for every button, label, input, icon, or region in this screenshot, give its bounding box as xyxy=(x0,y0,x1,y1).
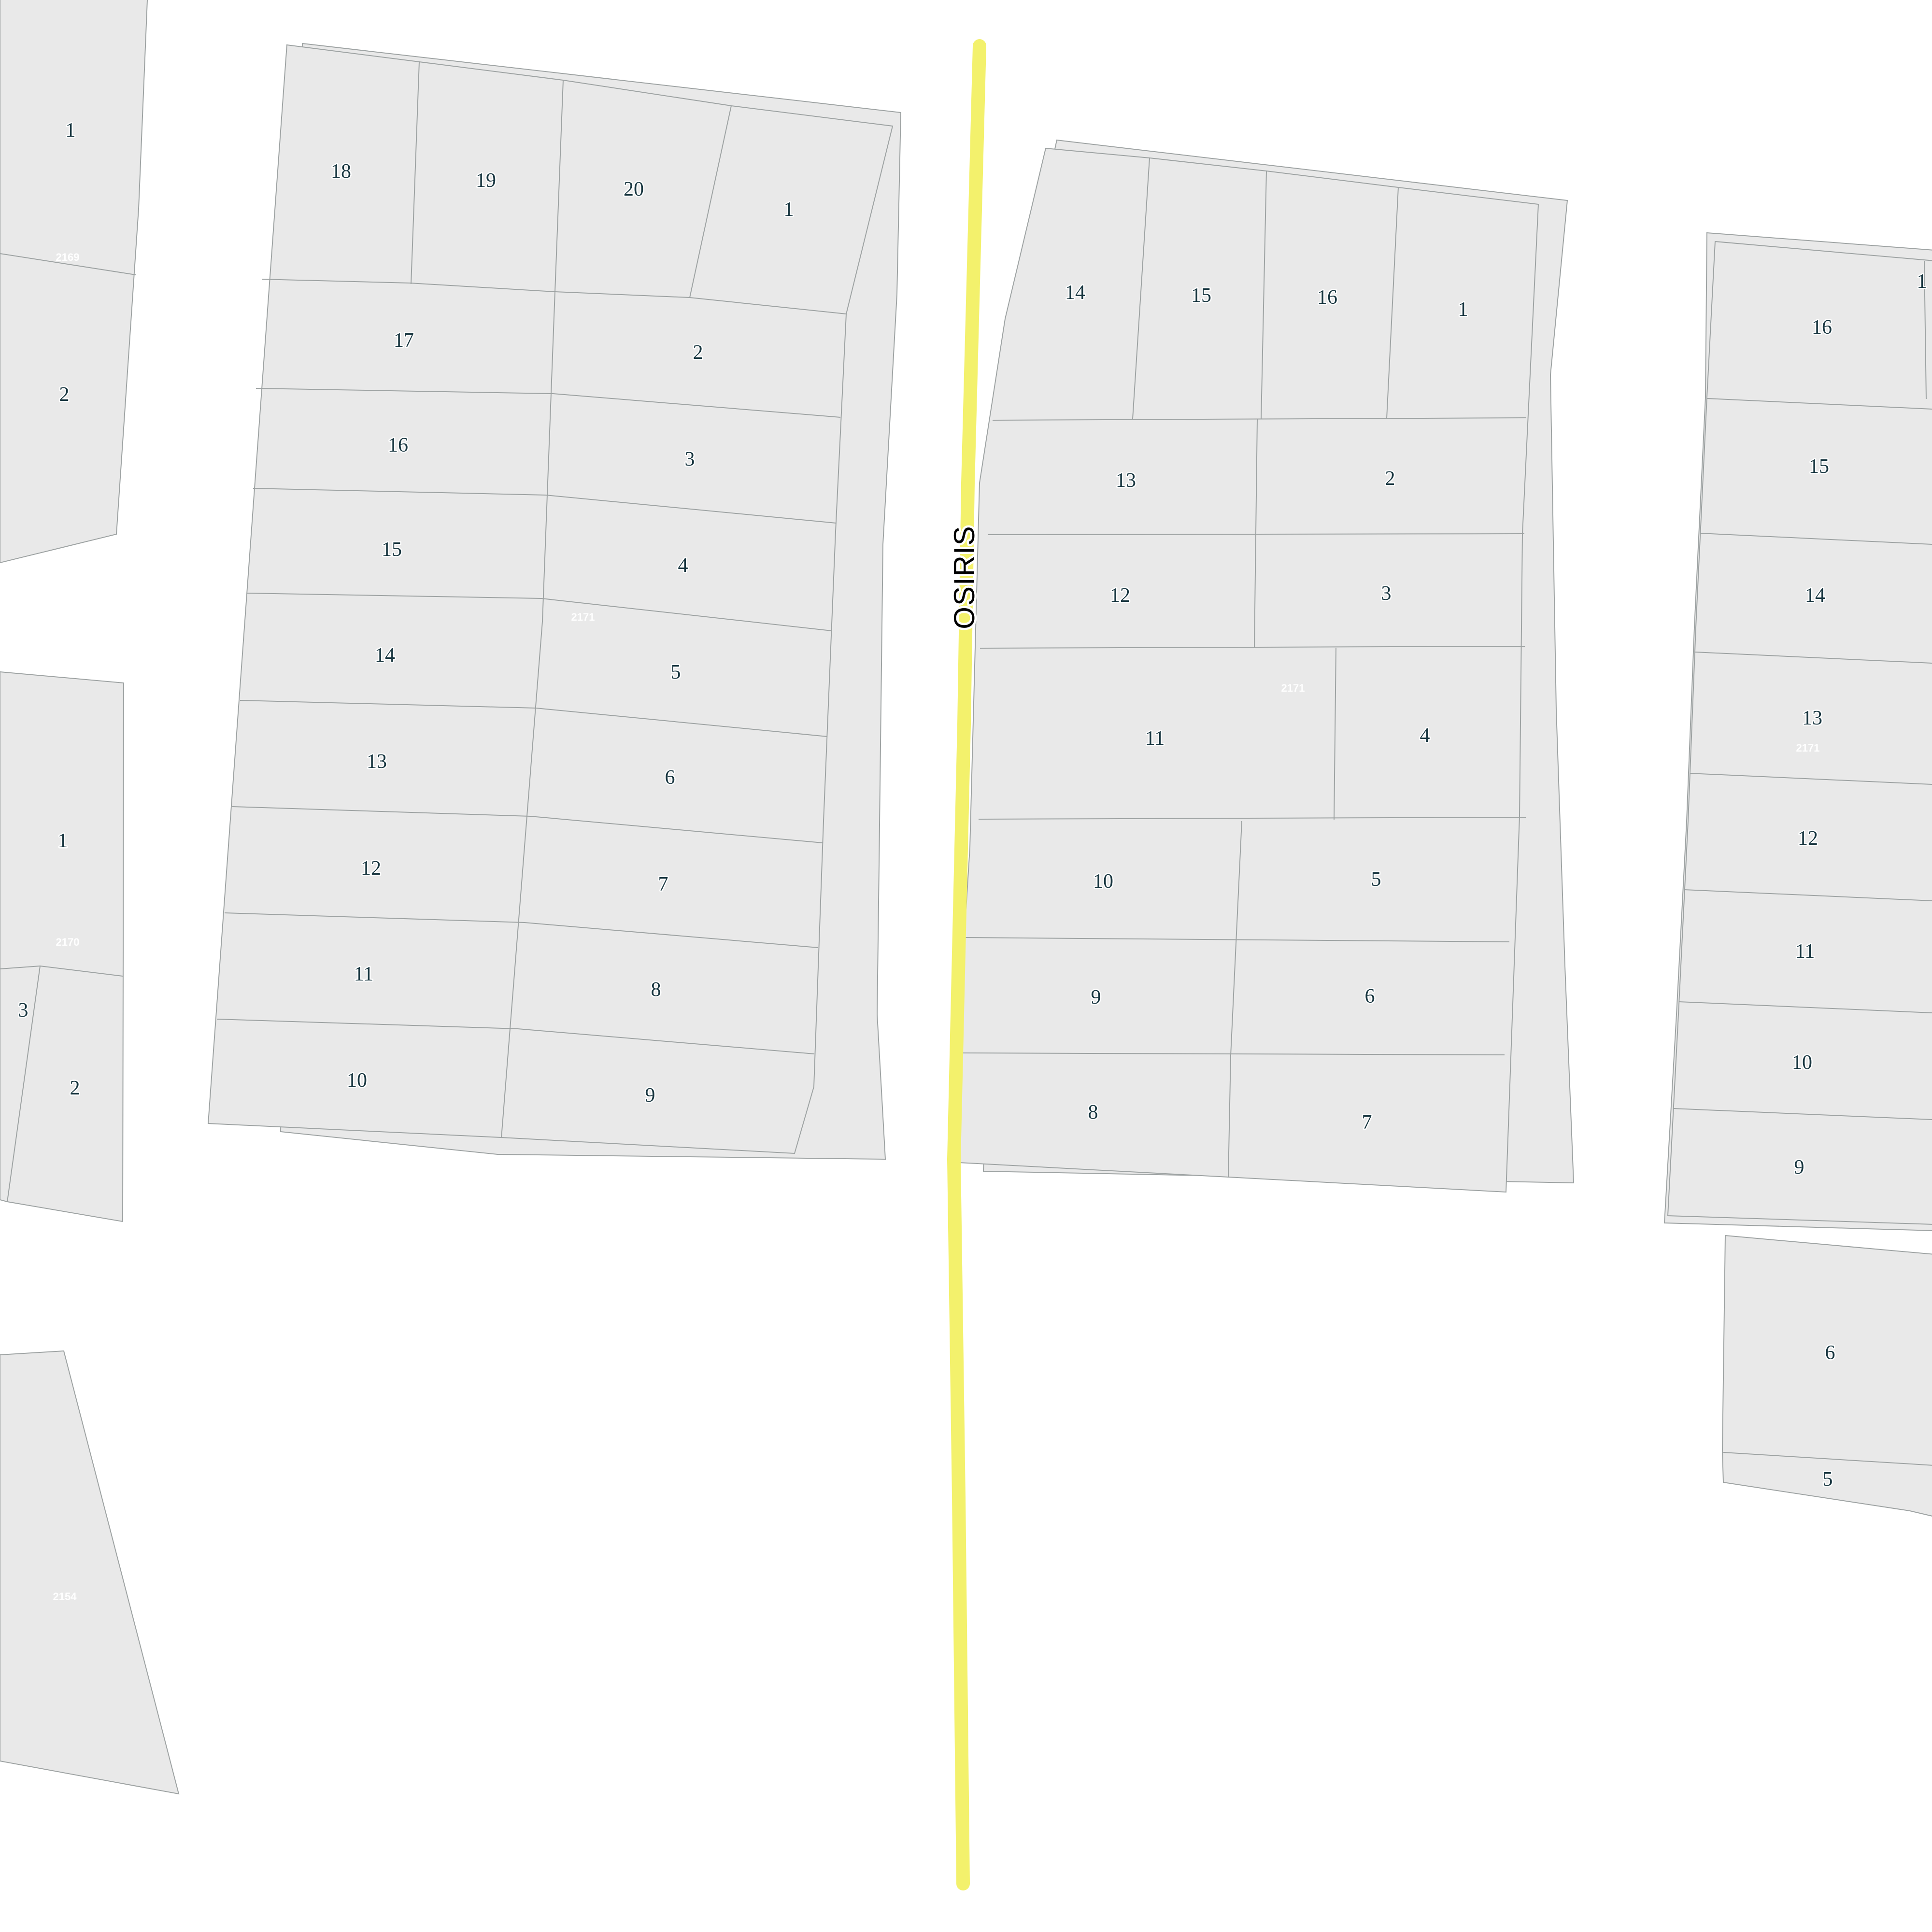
svg-text:9: 9 xyxy=(1794,1156,1804,1179)
svg-text:1: 1 xyxy=(66,119,76,142)
svg-text:3: 3 xyxy=(685,448,695,470)
svg-text:6: 6 xyxy=(1825,1342,1835,1364)
svg-text:7: 7 xyxy=(658,873,668,895)
svg-text:13: 13 xyxy=(1116,469,1136,492)
svg-text:2171: 2171 xyxy=(571,611,595,623)
svg-text:15: 15 xyxy=(1191,284,1211,307)
svg-text:2169: 2169 xyxy=(56,251,80,263)
svg-text:8: 8 xyxy=(1088,1101,1098,1123)
svg-text:20: 20 xyxy=(624,178,644,200)
svg-text:12: 12 xyxy=(361,857,381,880)
svg-text:9: 9 xyxy=(1091,986,1101,1009)
svg-text:14: 14 xyxy=(375,644,395,667)
svg-text:9: 9 xyxy=(645,1084,655,1107)
svg-text:10: 10 xyxy=(1093,870,1113,893)
svg-text:16: 16 xyxy=(1812,316,1832,339)
svg-text:11: 11 xyxy=(354,963,373,985)
svg-text:11: 11 xyxy=(1145,727,1165,750)
svg-text:16: 16 xyxy=(1317,286,1337,309)
svg-text:14: 14 xyxy=(1805,584,1825,607)
svg-text:2: 2 xyxy=(693,341,703,364)
svg-text:15: 15 xyxy=(1809,455,1829,478)
svg-text:10: 10 xyxy=(1792,1051,1812,1074)
svg-text:2171: 2171 xyxy=(1796,742,1820,754)
svg-text:1: 1 xyxy=(58,830,68,852)
svg-text:12: 12 xyxy=(1798,827,1818,850)
svg-text:6: 6 xyxy=(1365,985,1375,1008)
svg-text:2171: 2171 xyxy=(1281,682,1305,694)
svg-text:2154: 2154 xyxy=(53,1591,77,1603)
svg-text:11: 11 xyxy=(1795,940,1815,963)
svg-text:OSIRIS: OSIRIS xyxy=(948,525,980,629)
svg-text:2: 2 xyxy=(70,1077,80,1099)
svg-text:15: 15 xyxy=(382,539,402,561)
svg-text:13: 13 xyxy=(1802,707,1822,729)
svg-text:1: 1 xyxy=(1458,298,1468,321)
svg-text:2: 2 xyxy=(1385,468,1395,490)
svg-text:12: 12 xyxy=(1110,584,1130,607)
svg-text:4: 4 xyxy=(1420,724,1430,747)
svg-text:7: 7 xyxy=(1362,1111,1372,1134)
svg-text:8: 8 xyxy=(651,979,661,1001)
svg-text:18: 18 xyxy=(331,160,351,183)
svg-text:2170: 2170 xyxy=(56,936,80,948)
svg-text:17: 17 xyxy=(394,329,414,352)
svg-text:6: 6 xyxy=(665,767,675,789)
svg-text:16: 16 xyxy=(388,434,408,456)
svg-text:10: 10 xyxy=(347,1069,367,1092)
svg-text:1: 1 xyxy=(784,199,794,221)
svg-text:5: 5 xyxy=(1371,868,1381,891)
svg-text:13: 13 xyxy=(367,751,387,773)
svg-text:19: 19 xyxy=(476,170,496,192)
svg-text:1: 1 xyxy=(1917,270,1927,293)
svg-text:3: 3 xyxy=(1381,582,1392,605)
svg-text:5: 5 xyxy=(671,661,681,683)
svg-text:14: 14 xyxy=(1065,282,1085,304)
svg-text:2: 2 xyxy=(59,384,70,406)
svg-text:3: 3 xyxy=(18,999,28,1022)
svg-text:4: 4 xyxy=(678,554,688,577)
svg-text:5: 5 xyxy=(1823,1468,1833,1491)
